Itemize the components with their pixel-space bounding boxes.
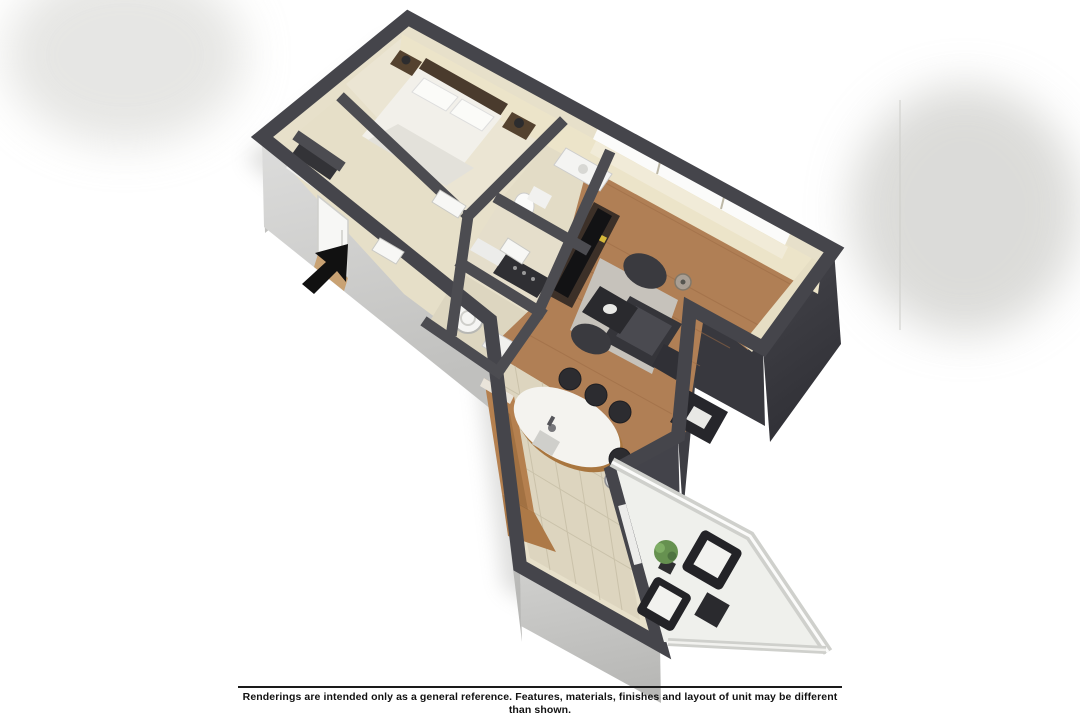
blurred-edge-right	[850, 85, 1080, 335]
photo-viewer: Renderings are intended only as a genera…	[0, 0, 1080, 720]
disclaimer: Renderings are intended only as a genera…	[238, 686, 842, 716]
floor-lamp	[675, 274, 691, 290]
disclaimer-text: Renderings are intended only as a genera…	[243, 691, 838, 716]
floor-plan-image	[0, 0, 1080, 720]
